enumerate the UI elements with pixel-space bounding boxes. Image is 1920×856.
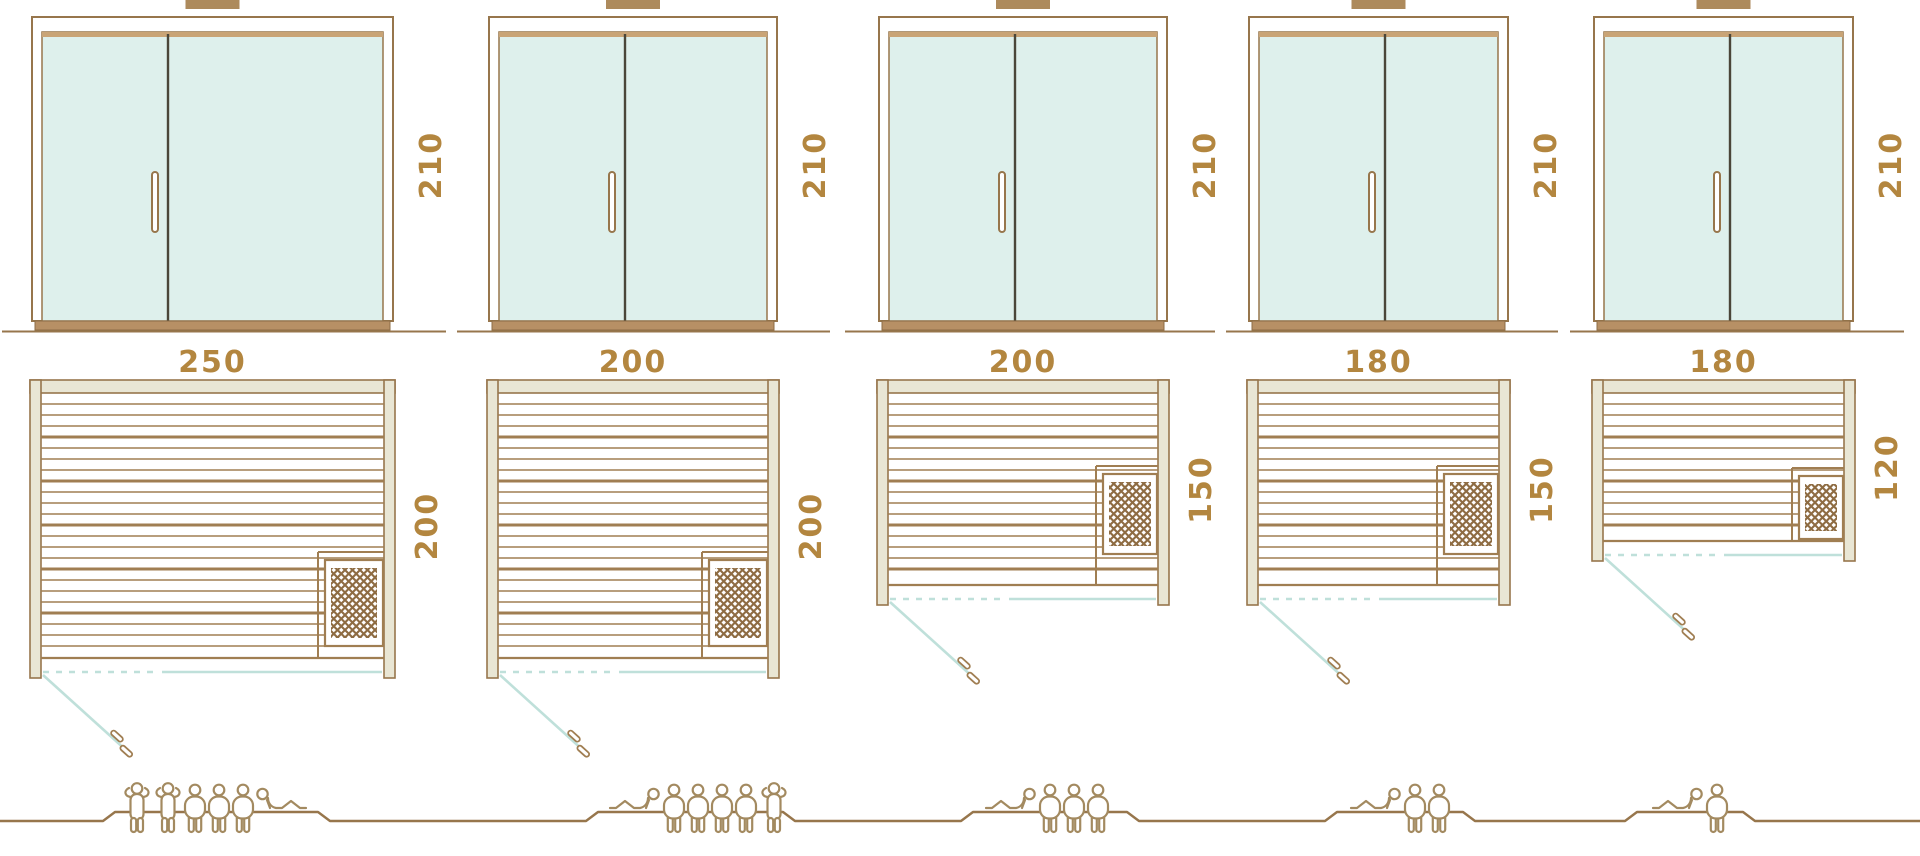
floor-plan: 200200 xyxy=(487,345,829,758)
sitting-person-icon xyxy=(712,785,732,832)
depth-dimension-label: 200 xyxy=(794,492,829,561)
height-dimension-label: 210 xyxy=(1874,131,1909,200)
plan-side-wall-left xyxy=(487,380,498,678)
threshold-sill xyxy=(1252,321,1505,330)
sitting-person-icon xyxy=(1405,785,1425,832)
heater-stones-grate xyxy=(1109,482,1151,546)
plan-side-wall-right xyxy=(384,380,395,678)
heater-stones-grate xyxy=(1450,482,1492,546)
door-plan-handle-bar xyxy=(1336,672,1350,685)
plan-top-wall xyxy=(30,380,395,393)
capacity-baseline xyxy=(0,812,1920,821)
door-front-elevation: 210 xyxy=(32,0,449,330)
door-handle xyxy=(1714,172,1720,232)
sauna-size-diagram: 2102502002102002002102001502101801502101… xyxy=(0,0,1920,856)
standing-person-icon xyxy=(156,783,179,832)
sitting-person-icon xyxy=(233,785,253,832)
roof-vent-tab xyxy=(996,0,1050,9)
capacity-figures-sauna-250x200 xyxy=(125,783,306,832)
plan-side-wall-left xyxy=(877,380,888,605)
door-front-elevation: 210 xyxy=(1249,0,1564,330)
door-swing-line xyxy=(43,675,127,751)
plan-side-wall-right xyxy=(768,380,779,678)
plan-side-wall-left xyxy=(30,380,41,678)
door-plan-handle-bar xyxy=(119,745,133,758)
width-dimension-label: 180 xyxy=(1689,345,1758,380)
capacity-figures-sauna-200x150 xyxy=(986,785,1108,832)
sitting-person-icon xyxy=(1429,785,1449,832)
door-plan-handle xyxy=(1669,613,1699,641)
door-plan-handle xyxy=(564,730,594,758)
sitting-person-icon xyxy=(736,785,756,832)
sitting-person-icon xyxy=(1040,785,1060,832)
floor-plan: 250200 xyxy=(30,345,445,758)
door-top-rail xyxy=(889,32,1157,37)
roof-vent-tab xyxy=(186,0,240,9)
height-dimension-label: 210 xyxy=(1529,131,1564,200)
plan-side-wall-right xyxy=(1158,380,1169,605)
door-swing-line xyxy=(500,675,584,751)
standing-person-icon xyxy=(762,783,785,832)
lying-person-icon xyxy=(610,789,659,808)
door-plan-handle-bar xyxy=(1681,628,1695,641)
door-top-rail xyxy=(1259,32,1498,37)
roof-vent-tab xyxy=(1352,0,1406,9)
door-swing-line xyxy=(1260,602,1344,678)
door-glass xyxy=(1604,32,1843,321)
depth-dimension-label: 200 xyxy=(410,492,445,561)
door-handle xyxy=(999,172,1005,232)
door-top-rail xyxy=(42,32,383,37)
capacity-figures-sauna-180x150 xyxy=(1351,785,1449,832)
door-front-elevation: 210 xyxy=(879,0,1223,330)
width-dimension-label: 180 xyxy=(1344,345,1413,380)
door-plan-handle-bar xyxy=(966,672,980,685)
door-front-elevation: 210 xyxy=(1594,0,1909,330)
sauna-column-sauna-200x200: 210200200 xyxy=(487,0,833,758)
floor-plan: 180120 xyxy=(1592,345,1905,641)
door-glass xyxy=(1259,32,1498,321)
door-glass xyxy=(42,32,383,321)
door-swing-line xyxy=(1605,558,1689,634)
plan-top-wall xyxy=(877,380,1169,393)
height-dimension-label: 210 xyxy=(798,131,833,200)
lying-person-icon xyxy=(257,789,306,808)
door-top-rail xyxy=(1604,32,1843,37)
threshold-sill xyxy=(882,321,1164,330)
sitting-person-icon xyxy=(1088,785,1108,832)
plan-side-wall-left xyxy=(1247,380,1258,605)
plan-side-wall-right xyxy=(1844,380,1855,561)
roof-vent-tab xyxy=(1697,0,1751,9)
sauna-column-sauna-200x150: 210200150 xyxy=(877,0,1223,685)
width-dimension-label: 200 xyxy=(989,345,1058,380)
sitting-person-icon xyxy=(664,785,684,832)
sauna-size-diagram-page: 2102502002102002002102001502101801502101… xyxy=(0,0,1920,856)
plan-top-wall xyxy=(487,380,779,393)
width-dimension-label: 200 xyxy=(599,345,668,380)
heater-stones-grate xyxy=(715,568,761,638)
sauna-column-sauna-180x120: 210180120 xyxy=(1592,0,1909,641)
depth-dimension-label: 150 xyxy=(1184,455,1219,524)
door-front-elevation: 210 xyxy=(489,0,833,330)
height-dimension-label: 210 xyxy=(1188,131,1223,200)
door-glass xyxy=(499,32,767,321)
floor-plan: 200150 xyxy=(877,345,1219,685)
sitting-person-icon xyxy=(1707,785,1727,832)
threshold-sill xyxy=(35,321,390,330)
plan-side-wall-left xyxy=(1592,380,1603,561)
sitting-person-icon xyxy=(185,785,205,832)
plan-side-wall-right xyxy=(1499,380,1510,605)
heater-stones-grate xyxy=(1805,484,1837,531)
lying-person-icon xyxy=(986,789,1035,808)
door-swing-line xyxy=(890,602,974,678)
plan-top-wall xyxy=(1592,380,1855,393)
height-dimension-label: 210 xyxy=(414,131,449,200)
door-glass xyxy=(889,32,1157,321)
door-plan-handle xyxy=(954,657,984,685)
capacity-figures-sauna-180x120 xyxy=(1653,785,1727,832)
plan-top-wall xyxy=(1247,380,1510,393)
heater-stones-grate xyxy=(331,568,377,638)
depth-dimension-label: 120 xyxy=(1870,433,1905,502)
lying-person-icon xyxy=(1653,789,1702,808)
depth-dimension-label: 150 xyxy=(1525,455,1560,524)
sitting-person-icon xyxy=(1064,785,1084,832)
door-handle xyxy=(609,172,615,232)
standing-person-icon xyxy=(125,783,148,832)
door-handle xyxy=(1369,172,1375,232)
floor-plan: 180150 xyxy=(1247,345,1560,685)
door-plan-handle-bar xyxy=(576,745,590,758)
door-plan-handle xyxy=(1324,657,1354,685)
width-dimension-label: 250 xyxy=(178,345,247,380)
roof-vent-tab xyxy=(606,0,660,9)
door-handle xyxy=(152,172,158,232)
threshold-sill xyxy=(1597,321,1850,330)
sauna-column-sauna-250x200: 210250200 xyxy=(30,0,449,758)
door-plan-handle xyxy=(107,730,137,758)
door-top-rail xyxy=(499,32,767,37)
threshold-sill xyxy=(492,321,774,330)
sitting-person-icon xyxy=(688,785,708,832)
sitting-person-icon xyxy=(209,785,229,832)
capacity-figures-sauna-200x200 xyxy=(610,783,786,832)
sauna-column-sauna-180x150: 210180150 xyxy=(1247,0,1564,685)
lying-person-icon xyxy=(1351,789,1400,808)
